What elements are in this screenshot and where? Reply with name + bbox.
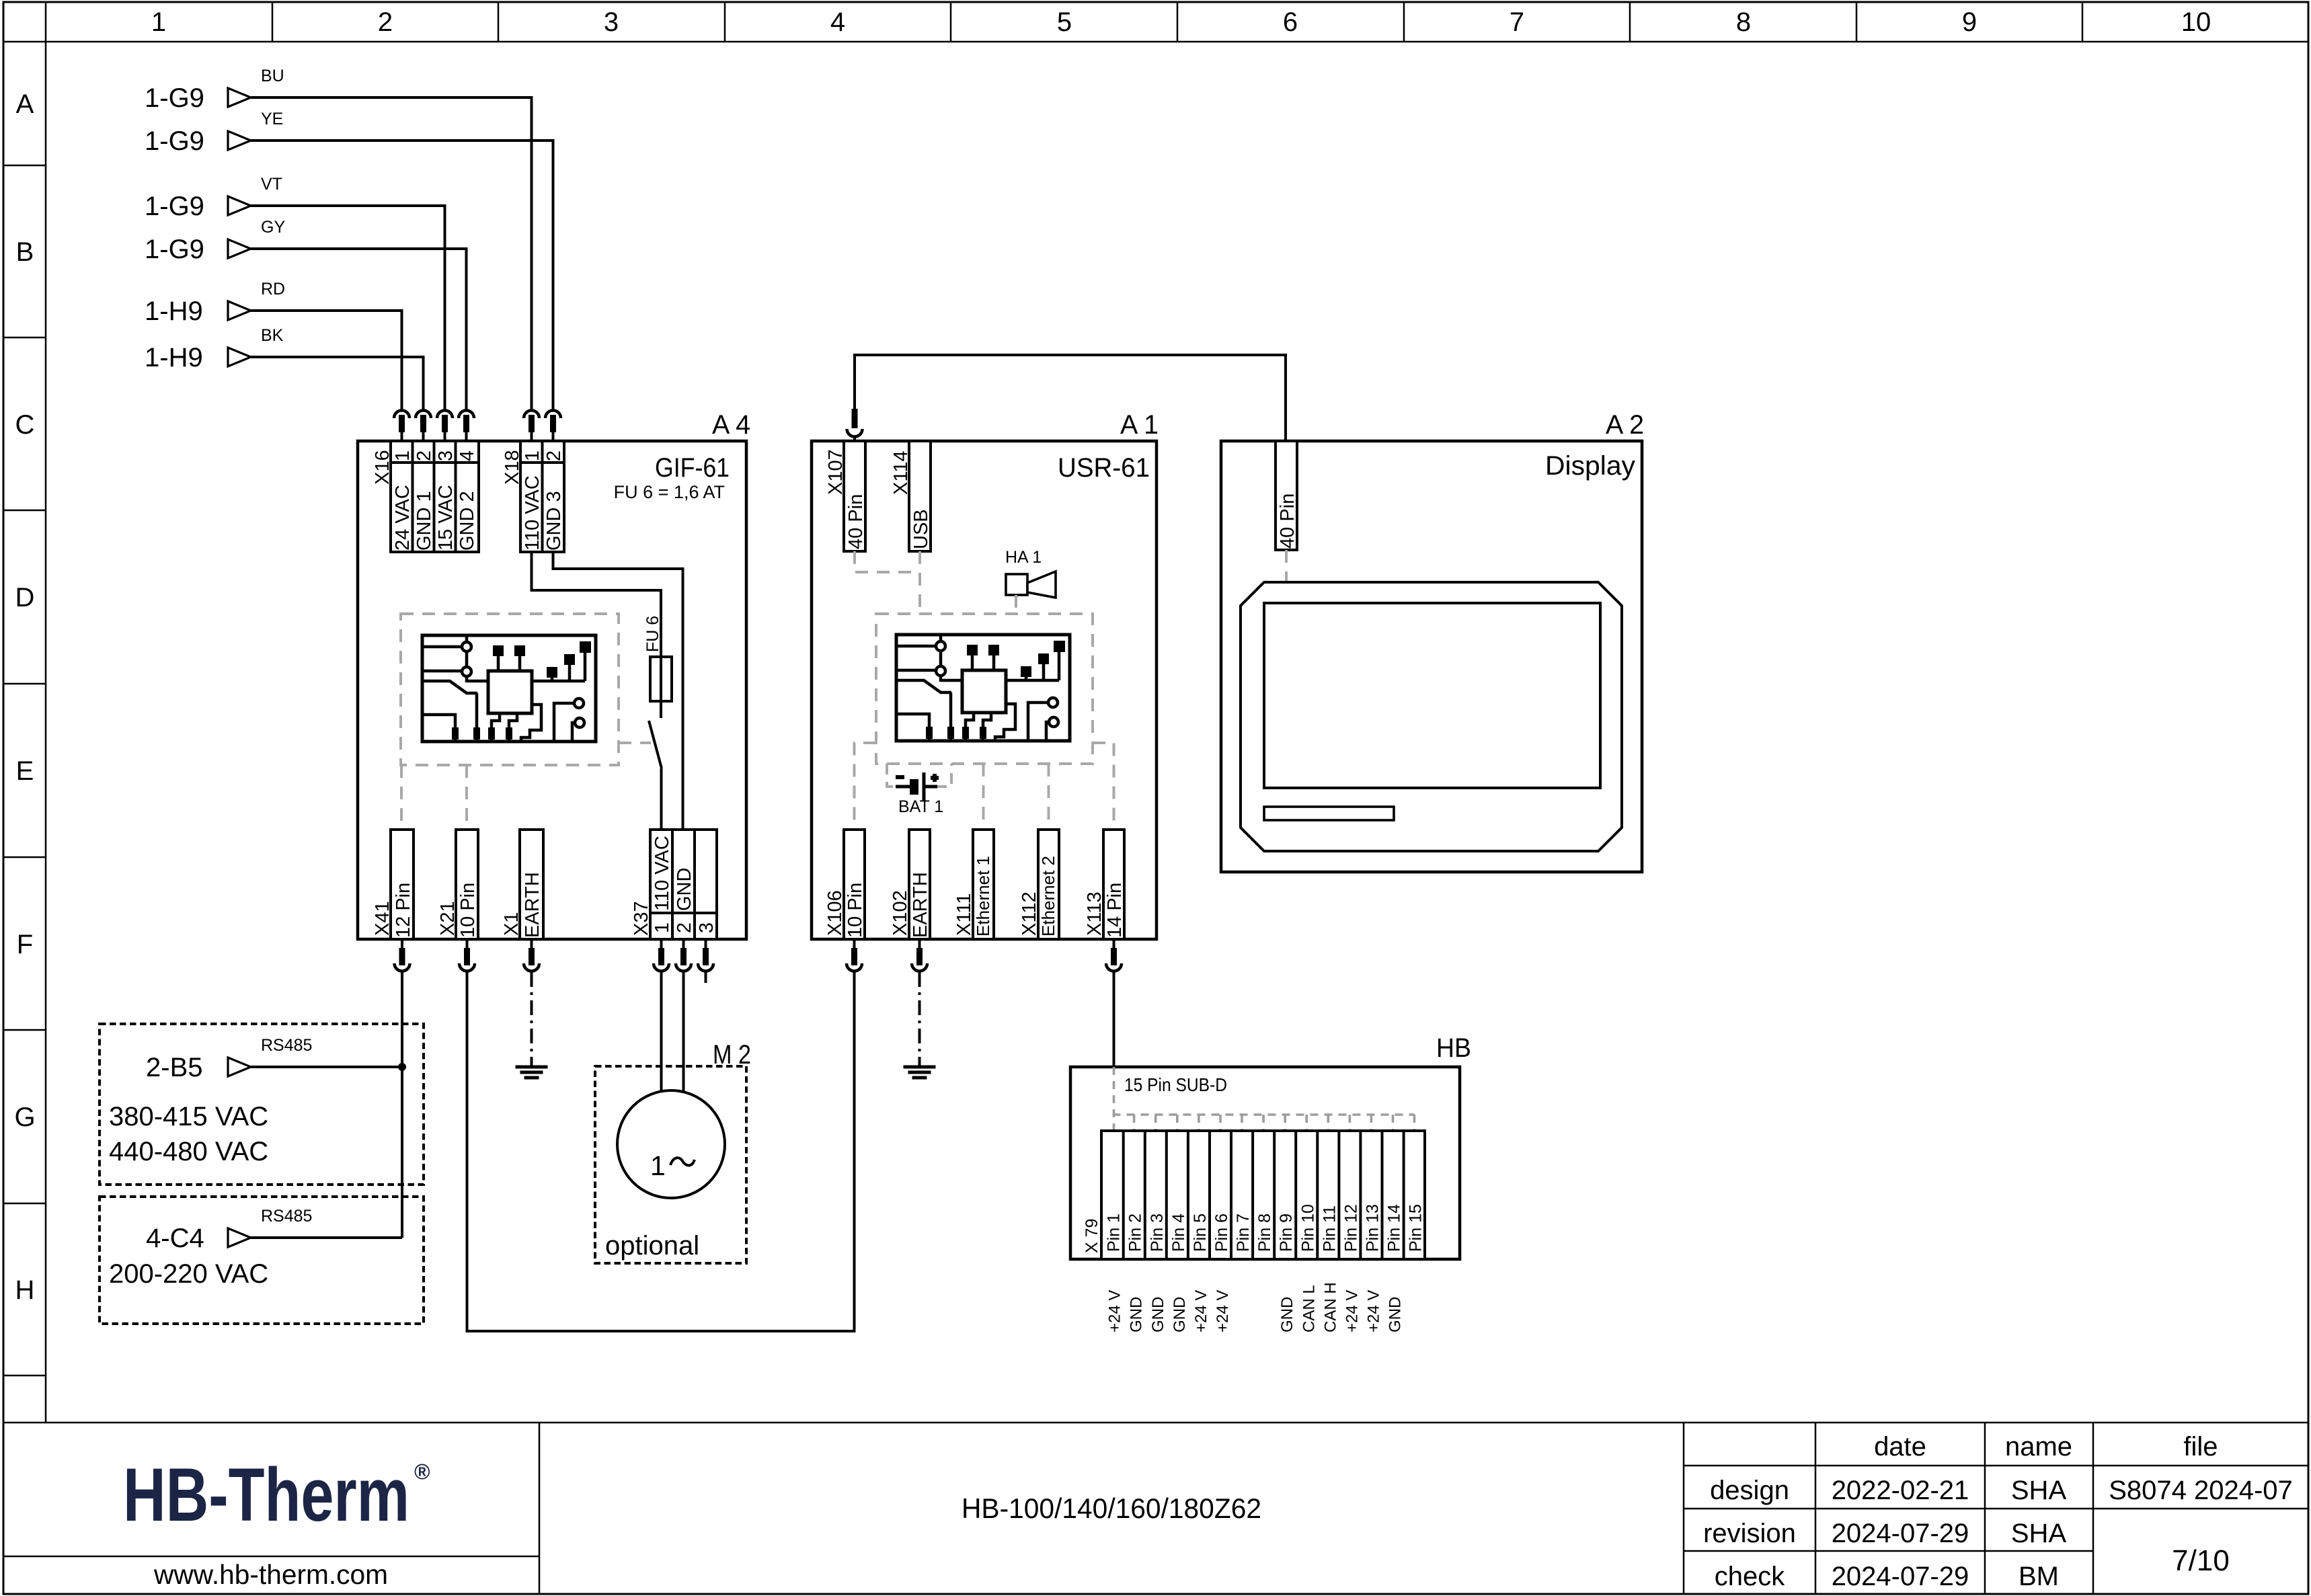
svg-text:Pin 10: Pin 10 [1298,1204,1317,1252]
svg-text:X41: X41 [372,901,393,936]
svg-text:GND: GND [1171,1297,1189,1332]
svg-text:HB-Therm: HB-Therm [123,1453,409,1537]
svg-text:1: 1 [522,450,543,461]
svg-text:4: 4 [830,7,845,37]
svg-text:4: 4 [457,450,478,461]
svg-text:VT: VT [261,175,282,194]
svg-text:Pin 7: Pin 7 [1234,1213,1253,1252]
svg-text:HB: HB [1436,1033,1471,1063]
svg-text:+24 V: +24 V [1192,1290,1210,1332]
svg-text:GND: GND [1278,1297,1296,1332]
svg-text:GND: GND [1149,1297,1167,1332]
svg-text:380-415 VAC: 380-415 VAC [109,1102,268,1131]
svg-text:®: ® [414,1460,430,1484]
svg-text:+24 V: +24 V [1214,1290,1232,1332]
svg-text:3: 3 [604,7,619,37]
svg-text:5: 5 [1057,7,1072,37]
svg-text:110 VAC: 110 VAC [522,475,543,551]
svg-text:1-G9: 1-G9 [145,126,204,156]
svg-text:7: 7 [1510,7,1524,37]
svg-text:B: B [16,237,34,267]
svg-text:200-220 VAC: 200-220 VAC [109,1259,268,1289]
svg-text:X 79: X 79 [1083,1219,1101,1253]
svg-text:15 VAC: 15 VAC [435,485,457,551]
svg-text:14 Pin: 14 Pin [1104,883,1126,938]
svg-text:24 VAC: 24 VAC [392,485,414,551]
svg-text:BAT 1: BAT 1 [898,797,943,816]
svg-text:2: 2 [414,450,435,461]
svg-text:RS485: RS485 [261,1207,312,1226]
svg-text:3: 3 [696,922,717,933]
svg-text:1-G9: 1-G9 [145,235,204,264]
svg-text:X114: X114 [890,450,912,495]
svg-text:1-G9: 1-G9 [145,83,204,113]
svg-text:10 Pin: 10 Pin [457,883,479,938]
svg-text:EARTH: EARTH [910,872,931,938]
svg-text:GND: GND [674,868,695,911]
svg-text:GY: GY [261,218,285,237]
svg-text:Pin 11: Pin 11 [1320,1205,1339,1252]
svg-text:+24 V: +24 V [1106,1290,1124,1332]
svg-text:A 1: A 1 [1120,410,1159,440]
svg-text:X113: X113 [1084,891,1105,936]
svg-text:check: check [1715,1562,1785,1591]
svg-text:X37: X37 [631,901,652,936]
svg-text:design: design [1710,1476,1789,1505]
svg-text:revision: revision [1703,1519,1796,1548]
svg-text:1-H9: 1-H9 [145,343,203,372]
svg-text:X112: X112 [1019,891,1040,936]
svg-text:1-H9: 1-H9 [145,296,203,326]
svg-text:4-C4: 4-C4 [146,1224,204,1253]
svg-text:Pin 15: Pin 15 [1407,1204,1425,1252]
svg-text:E: E [16,756,34,786]
svg-text:A 4: A 4 [712,410,750,440]
svg-text:Pin 9: Pin 9 [1277,1213,1296,1252]
svg-text:X107: X107 [825,449,847,495]
svg-text:2-B5: 2-B5 [146,1053,203,1082]
svg-text:15 Pin SUB-D: 15 Pin SUB-D [1124,1074,1227,1095]
svg-text:S8074 2024-07: S8074 2024-07 [2109,1476,2293,1505]
svg-text:Pin 4: Pin 4 [1169,1213,1188,1252]
svg-text:7/10: 7/10 [2172,1544,2230,1577]
svg-text:F: F [17,930,33,959]
svg-text:RD: RD [261,280,285,298]
svg-text:440-480 VAC: 440-480 VAC [109,1137,268,1166]
svg-text:BK: BK [261,326,284,345]
svg-text:2: 2 [378,7,393,37]
svg-text:BU: BU [261,67,284,85]
svg-text:USR-61: USR-61 [1058,453,1150,483]
svg-text:X102: X102 [890,890,911,936]
svg-text:8: 8 [1736,7,1751,37]
svg-text:X111: X111 [953,893,975,936]
svg-text:G: G [14,1103,35,1132]
svg-text:Display: Display [1545,451,1635,481]
svg-text:GND: GND [1128,1297,1146,1332]
svg-text:GND: GND [1386,1297,1405,1332]
svg-text:X21: X21 [437,901,459,936]
svg-text:FU 6 = 1,6 AT: FU 6 = 1,6 AT [614,482,725,502]
svg-text:Pin 14: Pin 14 [1385,1204,1404,1252]
svg-text:D: D [15,583,35,612]
svg-text:2024-07-29: 2024-07-29 [1832,1562,1969,1591]
svg-text:3: 3 [435,450,457,461]
svg-text:Pin 12: Pin 12 [1341,1204,1360,1252]
svg-text:SHA: SHA [2011,1476,2067,1505]
svg-text:SHA: SHA [2011,1519,2067,1548]
svg-text:+24 V: +24 V [1343,1290,1361,1332]
svg-text:110 VAC: 110 VAC [652,836,673,911]
svg-text:Pin 13: Pin 13 [1364,1204,1382,1252]
svg-text:CAN L: CAN L [1300,1285,1318,1332]
svg-text:Pin 6: Pin 6 [1212,1213,1231,1252]
svg-text:file: file [2183,1432,2218,1462]
svg-text:2024-07-29: 2024-07-29 [1832,1519,1969,1548]
svg-text:H: H [15,1275,35,1305]
svg-text:HB-100/140/160/180Z62: HB-100/140/160/180Z62 [962,1492,1261,1524]
svg-text:X18: X18 [502,450,523,485]
svg-text:name: name [2005,1432,2072,1462]
svg-text:Pin 2: Pin 2 [1126,1213,1145,1252]
svg-text:X1: X1 [501,912,522,936]
svg-text:10 Pin: 10 Pin [845,883,866,938]
svg-text:C: C [15,410,35,440]
svg-text:1: 1 [652,922,673,933]
svg-text:Pin 8: Pin 8 [1255,1213,1274,1252]
svg-text:GND 2: GND 2 [457,491,478,551]
svg-text:12 Pin: 12 Pin [393,883,414,938]
svg-text:USB: USB [910,509,932,549]
svg-text:GND 3: GND 3 [543,491,565,551]
svg-text:GIF-61: GIF-61 [655,453,730,483]
svg-text:EARTH: EARTH [522,872,543,938]
svg-text:Pin 1: Pin 1 [1105,1213,1124,1252]
svg-text:2: 2 [674,922,695,933]
svg-text:GND 1: GND 1 [414,491,435,551]
svg-text:A: A [16,89,34,119]
svg-text:1-G9: 1-G9 [145,192,204,221]
svg-text:RS485: RS485 [261,1036,312,1055]
svg-text:2022-02-21: 2022-02-21 [1832,1476,1969,1505]
svg-text:40 Pin: 40 Pin [1277,493,1298,549]
svg-text:Pin 3: Pin 3 [1148,1213,1167,1252]
svg-text:1: 1 [151,7,166,37]
svg-text:CAN H: CAN H [1321,1282,1339,1332]
svg-text:A 2: A 2 [1606,410,1644,440]
svg-text:9: 9 [1962,7,1977,37]
svg-text:optional: optional [605,1231,699,1261]
svg-text:Ethernet 1: Ethernet 1 [973,856,993,936]
svg-text:1: 1 [650,1150,666,1181]
svg-text:40 Pin: 40 Pin [845,494,867,549]
svg-text:X106: X106 [824,890,846,936]
svg-text:6: 6 [1283,7,1298,37]
svg-text:Ethernet 2: Ethernet 2 [1038,856,1058,936]
svg-text:FU 6: FU 6 [643,616,662,652]
svg-text:2: 2 [543,450,565,461]
svg-text:+24 V: +24 V [1365,1290,1383,1332]
svg-text:YE: YE [261,110,283,128]
svg-text:www.hb-therm.com: www.hb-therm.com [153,1559,388,1590]
svg-text:Pin 5: Pin 5 [1191,1213,1210,1252]
svg-text:HA 1: HA 1 [1005,548,1042,567]
svg-text:X16: X16 [372,450,393,485]
svg-text:BM: BM [2019,1562,2059,1591]
svg-text:10: 10 [2181,7,2211,37]
svg-text:1: 1 [392,450,414,461]
svg-text:date: date [1874,1432,1926,1462]
